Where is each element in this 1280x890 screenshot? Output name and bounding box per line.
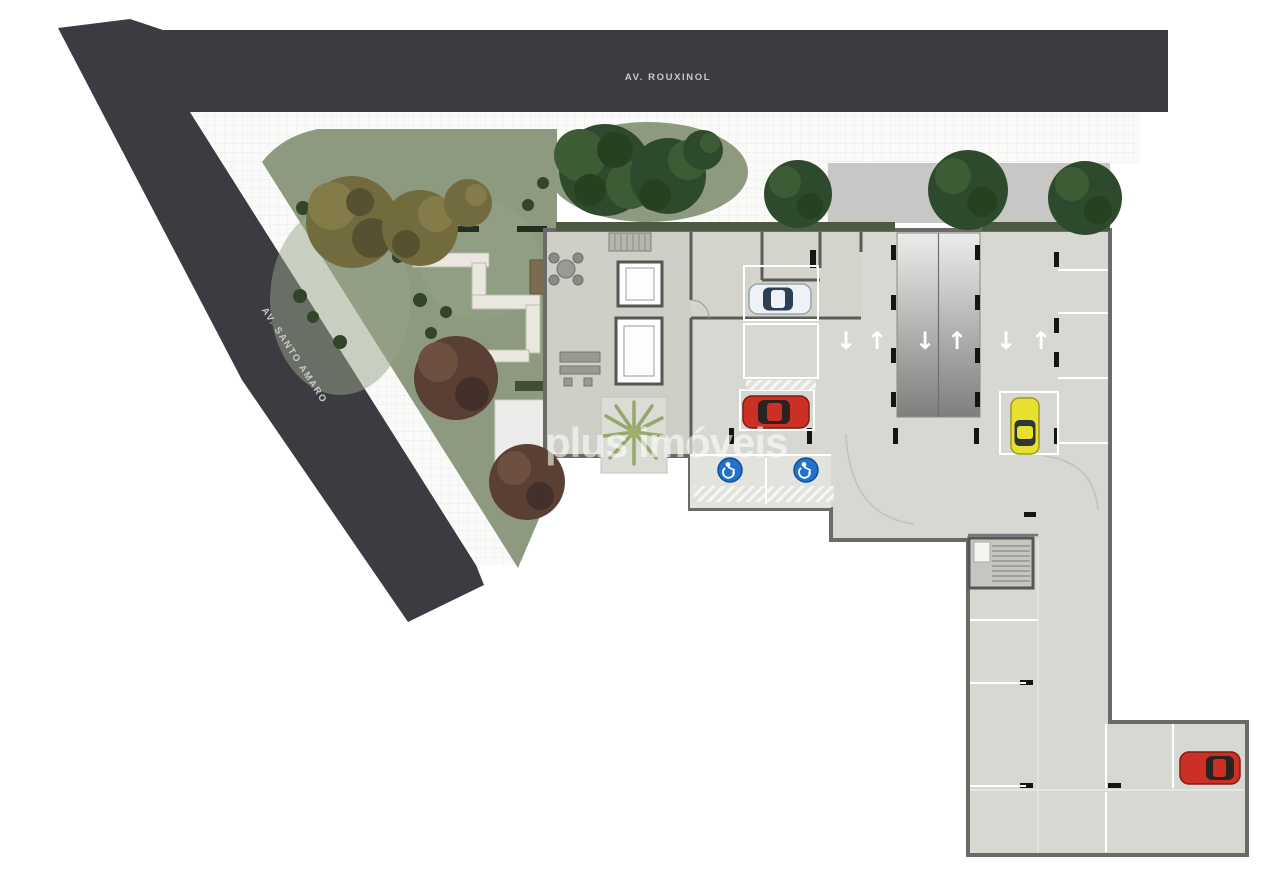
arrow-down-icon: ↓ — [915, 327, 935, 355]
arrow-down-icon: ↓ — [836, 327, 856, 355]
tree-dark-green — [928, 150, 1008, 230]
arrow-up-icon: ↑ — [947, 327, 967, 355]
stairwell — [969, 538, 1033, 588]
accessible-badge — [794, 458, 818, 482]
arrow-up-icon: ↑ — [867, 327, 887, 355]
watermark: plus imóveis — [545, 419, 787, 466]
hedge-strip-top — [556, 222, 1110, 231]
arrow-down-icon: ↓ — [996, 327, 1016, 355]
car-yellow — [1011, 398, 1039, 454]
hatch-strip-center — [746, 380, 816, 390]
tree-dark-green — [764, 160, 832, 228]
site-plan-page: ↓ ↑ ↓ ↑ ↓ ↑ — [0, 0, 1280, 890]
accessible-hatch-strip — [694, 486, 834, 502]
car-white — [749, 284, 811, 314]
site-plan-canvas: ↓ ↑ ↓ ↑ ↓ ↑ — [0, 0, 1280, 890]
equipment-box — [609, 233, 651, 251]
street-label-top: AV. ROUXINOL — [625, 72, 711, 83]
elevator-shafts — [616, 262, 662, 384]
ramp — [897, 233, 980, 417]
tree-dark-green — [1048, 161, 1122, 235]
arrow-up-icon: ↑ — [1031, 327, 1051, 355]
car-red-bottom — [1180, 752, 1240, 784]
